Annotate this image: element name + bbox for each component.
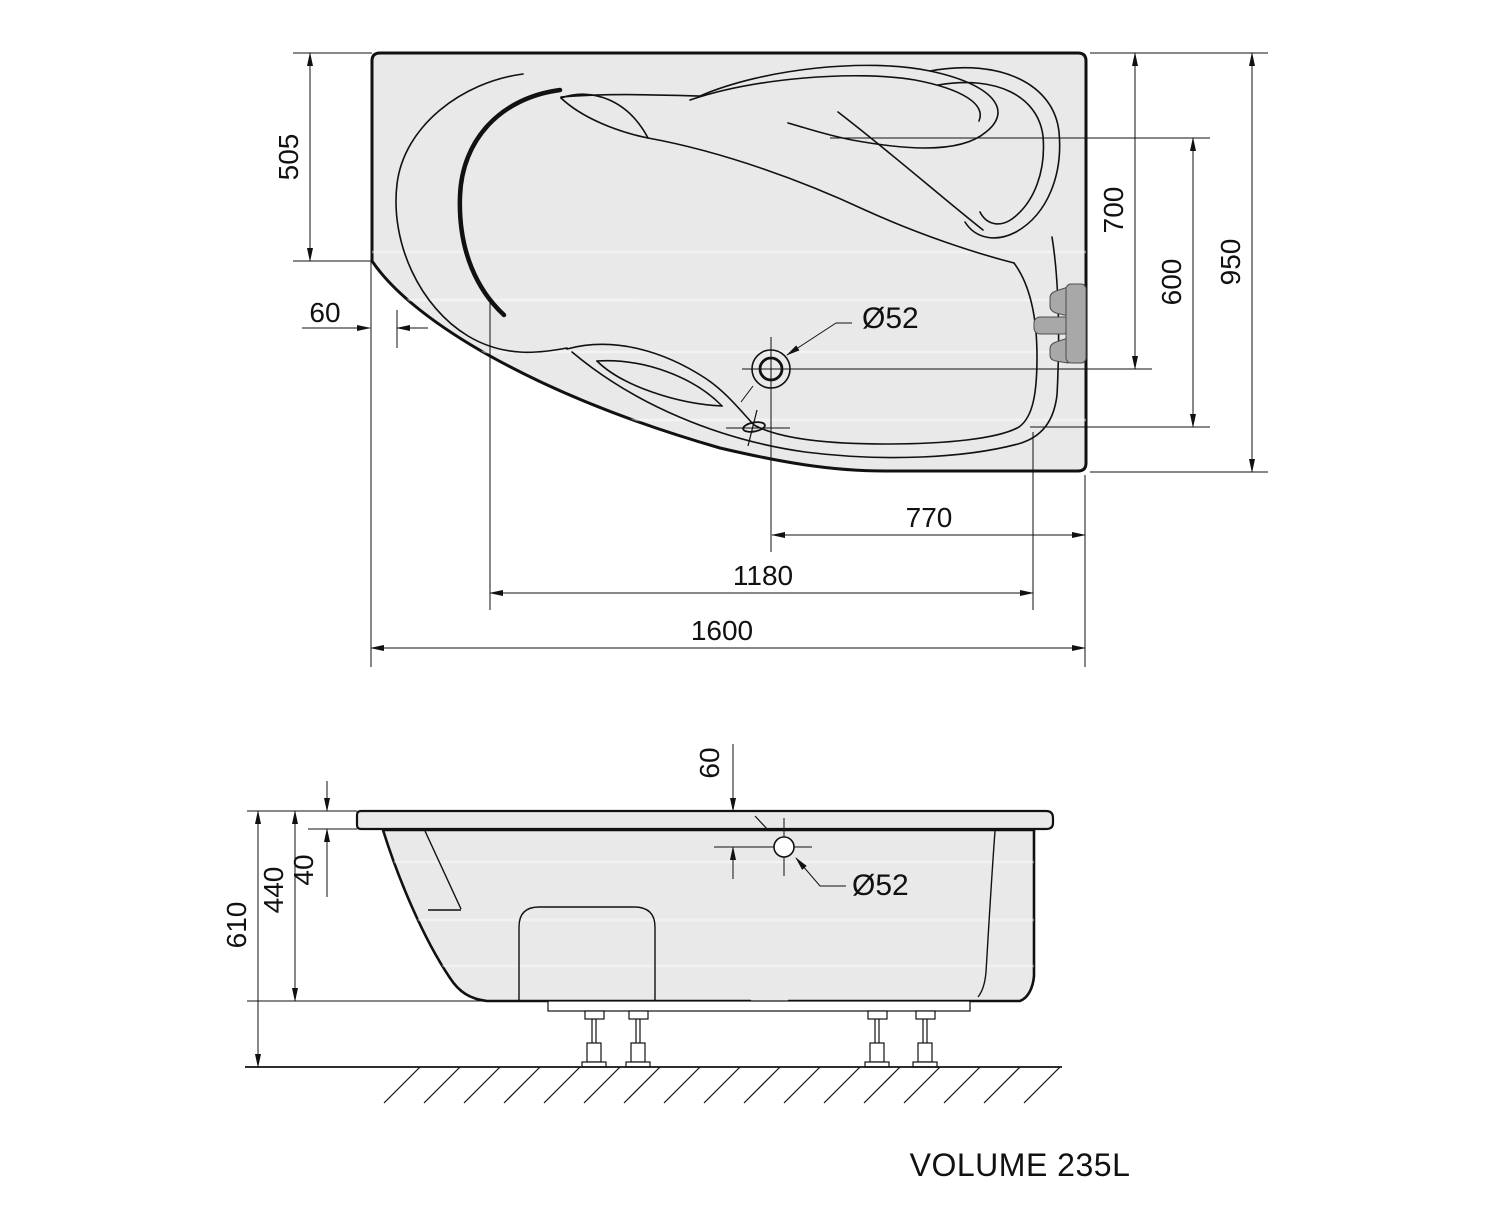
dim-1180-label: 1180 (733, 560, 793, 591)
dim-60-label: 60 (309, 297, 340, 328)
dim-505-label: 505 (273, 134, 304, 181)
dim-40-label: 40 (288, 854, 319, 885)
plan-tub-outline (372, 53, 1086, 471)
dim-1600: 1600 (371, 615, 1085, 648)
dim-610-label: 610 (221, 902, 252, 949)
ground (245, 1067, 1062, 1103)
dim-600: 600 (1156, 138, 1193, 427)
leg-assembly (582, 1011, 937, 1067)
volume-label: VOLUME 235L (910, 1147, 1131, 1183)
dim-440-label: 440 (258, 867, 289, 914)
dim-600-label: 600 (1156, 259, 1187, 306)
support-frame (548, 1001, 970, 1067)
ground-hatching (384, 1067, 1060, 1103)
bathtub-dimension-drawing: 505 60 700 600 950 770 (0, 0, 1500, 1215)
dim-1180: 1180 (490, 560, 1033, 593)
dim-700: 700 (1098, 53, 1135, 369)
dim-610: 610 (221, 811, 258, 1067)
dim-60-side-label: 60 (694, 747, 725, 778)
dim-505: 505 (273, 53, 310, 261)
dim-770: 770 (772, 502, 1085, 535)
plan-view: 505 60 700 600 950 770 (273, 53, 1268, 667)
plan-drain-diameter-label: Ø52 (862, 302, 919, 335)
side-view: 610 440 40 60 Ø52 (221, 744, 1062, 1103)
dim-700-label: 700 (1098, 187, 1129, 234)
dim-40: 40 (288, 781, 327, 897)
fixture-body (1066, 284, 1086, 363)
frame-rail (548, 1001, 970, 1011)
dim-1600-label: 1600 (691, 615, 753, 646)
side-drain-diameter-label: Ø52 (852, 869, 909, 902)
technical-drawing-page: 505 60 700 600 950 770 (0, 0, 1500, 1215)
dim-950: 950 (1215, 53, 1252, 472)
fixture-tab-middle (1034, 317, 1070, 334)
dim-770-label: 770 (906, 502, 953, 533)
dim-950-label: 950 (1215, 239, 1246, 286)
dim-440: 440 (258, 811, 295, 1001)
side-rim (357, 811, 1053, 829)
